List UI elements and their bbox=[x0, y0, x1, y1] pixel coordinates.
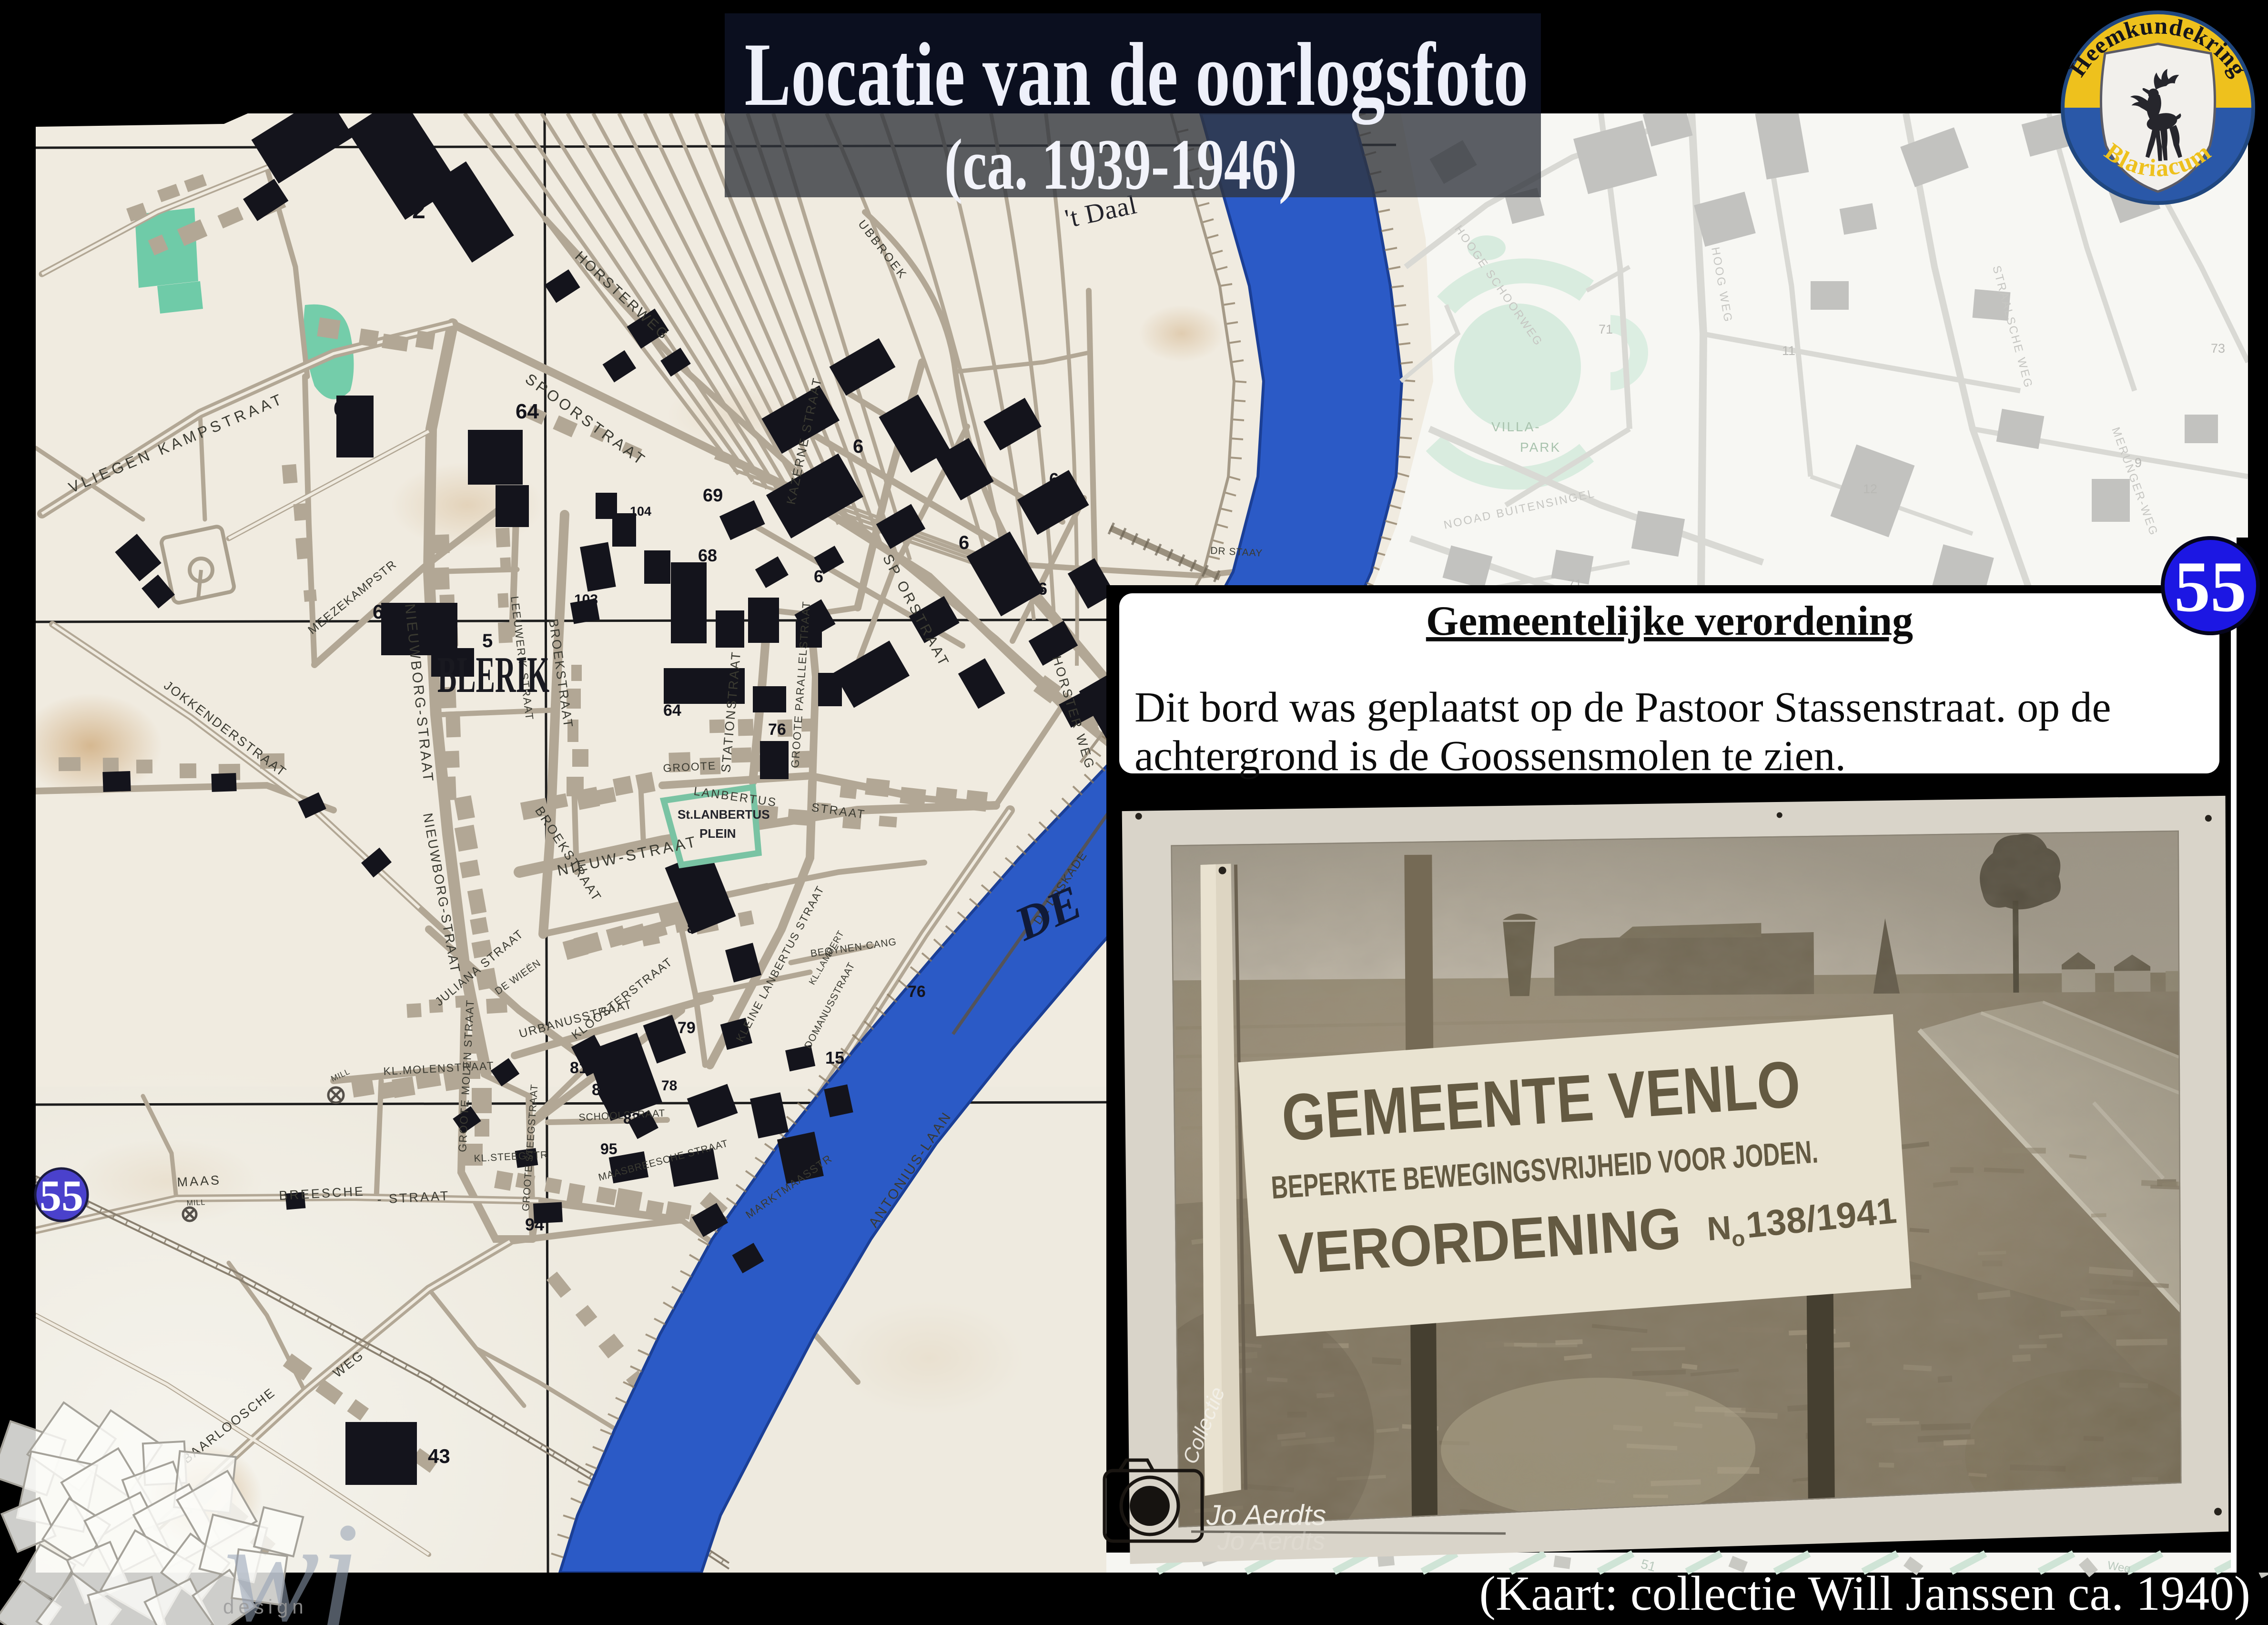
svg-text:(ca. 1939-1946): (ca. 1939-1946) bbox=[944, 124, 1297, 204]
svg-text:81: 81 bbox=[570, 1059, 588, 1077]
svg-text:VILLA-: VILLA- bbox=[1491, 419, 1541, 434]
svg-text:55: 55 bbox=[2174, 547, 2247, 627]
svg-text:79: 79 bbox=[678, 1019, 696, 1037]
svg-text:82: 82 bbox=[592, 1081, 610, 1099]
svg-text:Jo Aerdts: Jo Aerdts bbox=[1206, 1499, 1326, 1531]
svg-text:66: 66 bbox=[373, 600, 395, 623]
svg-text:76: 76 bbox=[768, 721, 786, 739]
svg-text:design: design bbox=[223, 1595, 308, 1618]
svg-text:68: 68 bbox=[698, 546, 717, 565]
svg-text:6: 6 bbox=[1038, 579, 1047, 599]
svg-text:94: 94 bbox=[525, 1215, 544, 1234]
svg-text:65: 65 bbox=[334, 397, 357, 420]
svg-text:PLEIN: PLEIN bbox=[699, 826, 736, 841]
svg-text:78: 78 bbox=[661, 1078, 677, 1094]
svg-text:MAAS: MAAS bbox=[177, 1173, 222, 1189]
svg-text:6: 6 bbox=[959, 532, 969, 553]
svg-text:PARK: PARK bbox=[1520, 440, 1561, 455]
svg-text:St.LANBERTUS: St.LANBERTUS bbox=[678, 807, 770, 822]
svg-text:12: 12 bbox=[1863, 482, 1877, 496]
svg-text:69: 69 bbox=[703, 486, 723, 506]
svg-text:64: 64 bbox=[516, 400, 539, 423]
svg-text:8: 8 bbox=[687, 921, 695, 936]
svg-text:95: 95 bbox=[600, 1140, 618, 1158]
svg-text:BLERIK: BLERIK bbox=[437, 647, 549, 703]
svg-text:43: 43 bbox=[428, 1445, 450, 1467]
svg-text:achtergrond is de Goossensmole: achtergrond is de Goossensmolen te zien. bbox=[1134, 732, 1846, 780]
svg-text:6: 6 bbox=[814, 567, 823, 586]
svg-text:104: 104 bbox=[630, 504, 651, 518]
svg-text:83: 83 bbox=[623, 1110, 640, 1127]
svg-text:Jo Aerdts: Jo Aerdts bbox=[1217, 1527, 1325, 1555]
svg-text:55: 55 bbox=[40, 1171, 83, 1220]
svg-text:6: 6 bbox=[853, 436, 863, 457]
svg-text:2: 2 bbox=[412, 197, 425, 223]
svg-text:11: 11 bbox=[1782, 344, 1795, 358]
svg-text:73: 73 bbox=[2211, 341, 2225, 355]
svg-text:(Kaart: collectie Will Janssen: (Kaart: collectie Will Janssen ca. 1940) bbox=[1479, 1566, 2250, 1621]
svg-text:MILL: MILL bbox=[186, 1198, 205, 1208]
svg-text:o: o bbox=[1731, 1226, 1746, 1251]
svg-text:Gemeentelijke verordening: Gemeentelijke verordening bbox=[1426, 598, 1913, 644]
svg-text:103: 103 bbox=[574, 592, 598, 608]
svg-text:15: 15 bbox=[825, 1048, 844, 1067]
svg-text:Dit bord was geplaatst op de P: Dit bord was geplaatst op de Pastoor Sta… bbox=[1134, 684, 2111, 731]
svg-text:71: 71 bbox=[1599, 322, 1613, 336]
svg-text:76: 76 bbox=[908, 983, 926, 1001]
svg-text:6: 6 bbox=[1049, 469, 1059, 489]
svg-text:Locatie van de oorlogsfoto: Locatie van de oorlogsfoto bbox=[745, 25, 1529, 125]
svg-text:64: 64 bbox=[663, 701, 681, 720]
svg-text:N: N bbox=[1706, 1209, 1732, 1248]
